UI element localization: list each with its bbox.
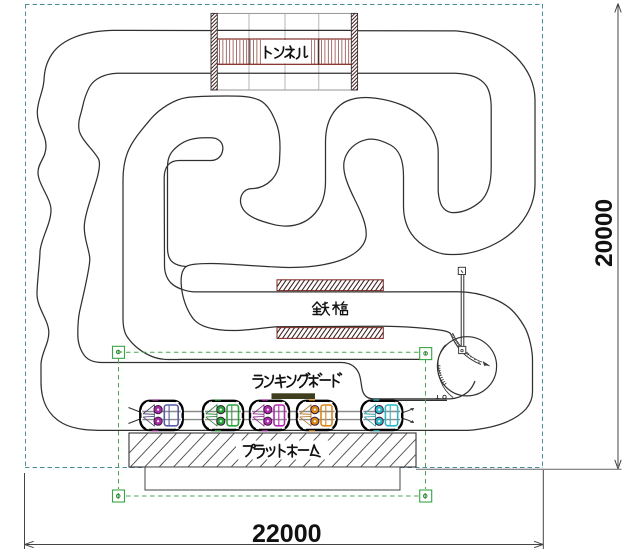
svg-text:20000: 20000: [591, 199, 618, 267]
svg-text:22000: 22000: [252, 520, 322, 548]
